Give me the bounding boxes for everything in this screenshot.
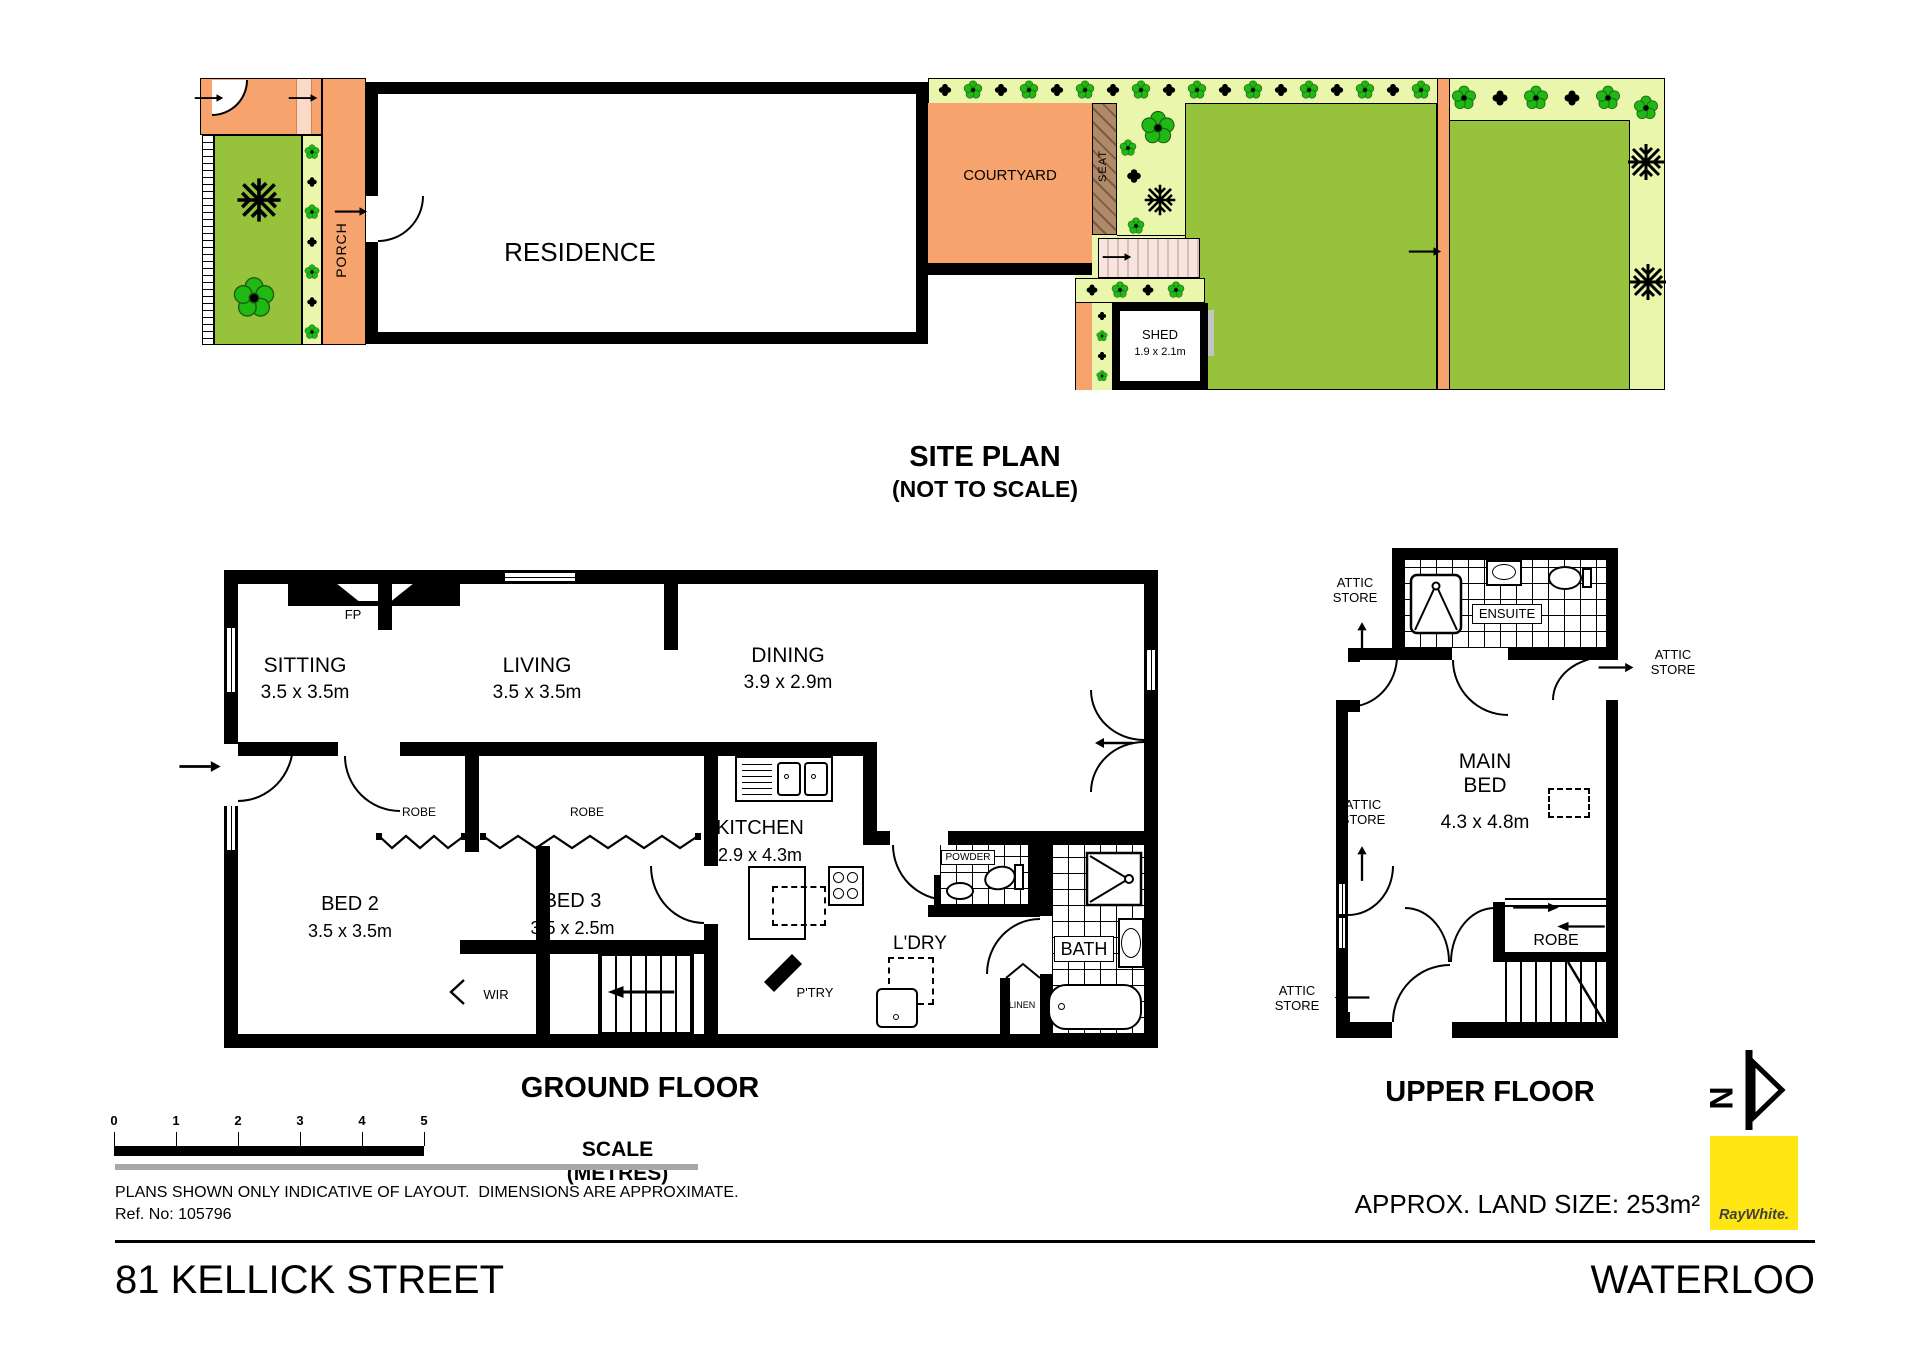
main-bed-dashed xyxy=(1548,788,1590,818)
robe-label: ROBE xyxy=(375,806,463,819)
wall xyxy=(224,570,1158,584)
cross-icon xyxy=(1272,81,1290,99)
shower-icon xyxy=(1085,851,1143,907)
door-arc-icon xyxy=(1552,656,1606,700)
flower-icon xyxy=(304,144,320,160)
flower-icon xyxy=(1096,370,1108,382)
linen-door-icon xyxy=(1004,962,1042,980)
cross-icon xyxy=(305,295,319,309)
main-bed-dims: 4.3 x 4.8m xyxy=(1410,812,1560,833)
scale-tick xyxy=(238,1132,239,1146)
laundry-tub xyxy=(876,988,918,1028)
residence xyxy=(366,82,928,344)
flower-icon xyxy=(1187,80,1207,100)
fern-icon xyxy=(1626,142,1666,182)
door-arc-icon xyxy=(650,866,704,924)
flower-icon xyxy=(1167,281,1185,299)
door-arc-icon xyxy=(344,756,400,812)
site-plan-subtitle: (NOT TO SCALE) xyxy=(835,477,1135,503)
basin xyxy=(946,882,974,900)
cross-icon xyxy=(305,235,319,249)
site-divider-fence xyxy=(1437,79,1450,389)
flower-icon xyxy=(1523,85,1549,111)
linen-label: LINEN xyxy=(1000,1000,1044,1010)
sitting-label: SITTING xyxy=(230,654,380,678)
ground-floor-title: GROUND FLOOR xyxy=(490,1072,790,1104)
door-arc-icon xyxy=(1392,964,1450,1022)
porch-door-gap xyxy=(366,196,378,242)
path-arrow-icon xyxy=(1102,252,1132,262)
cross-icon xyxy=(1096,310,1108,322)
north-letter: N xyxy=(1702,1078,1738,1118)
dining-dims: 3.9 x 2.9m xyxy=(713,672,863,693)
robe-rail-icon xyxy=(480,832,702,852)
toilet xyxy=(1548,566,1582,590)
cross-icon xyxy=(1384,81,1402,99)
upper-floor-title: UPPER FLOOR xyxy=(1340,1076,1640,1108)
vanity-basin xyxy=(1121,928,1141,958)
flower-icon xyxy=(232,276,276,320)
front-fence xyxy=(202,135,214,345)
north-arrow-icon xyxy=(1742,1048,1788,1132)
wall xyxy=(928,263,1092,275)
scale-tick-label: 1 xyxy=(171,1114,181,1129)
scale-tick xyxy=(300,1132,301,1146)
flower-icon xyxy=(304,324,320,340)
kitchen-dims: 2.9 x 4.3m xyxy=(690,845,830,865)
disclaimer: PLANS SHOWN ONLY INDICATIVE OF LAYOUT. D… xyxy=(115,1184,815,1202)
bed3-dims: 3.5 x 2.5m xyxy=(500,918,645,938)
flower-icon xyxy=(1075,80,1095,100)
flower-icon xyxy=(1096,330,1108,342)
flower-icon xyxy=(1131,80,1151,100)
flower-icon xyxy=(304,204,320,220)
dining-label: DINING xyxy=(713,644,863,668)
wall xyxy=(378,584,392,630)
floorplan-page: COURTYARD SEAT SHED 1.9 x 2.1m PORCH R xyxy=(0,0,1920,1357)
wall xyxy=(704,924,718,1034)
wall xyxy=(460,940,704,954)
stairs-arrow-icon xyxy=(606,985,676,999)
land-size: APPROX. LAND SIZE: 253m² xyxy=(1350,1190,1700,1219)
cross-icon xyxy=(1489,87,1511,109)
cross-icon xyxy=(936,81,954,99)
flower-icon xyxy=(1299,80,1319,100)
bed2-dims: 3.5 x 3.5m xyxy=(275,921,425,941)
burner xyxy=(833,872,844,883)
attic-store-label: ATTIC STORE xyxy=(1262,984,1332,1013)
pantry-door-icon xyxy=(762,950,806,992)
main-bed-label: MAIN BED xyxy=(1445,750,1525,797)
bathtub-tap xyxy=(1058,1003,1065,1010)
wall xyxy=(664,584,678,650)
cross-icon xyxy=(1084,282,1100,298)
toilet-cistern xyxy=(1014,864,1024,890)
flower-icon xyxy=(1140,110,1176,146)
cross-icon xyxy=(1104,81,1122,99)
cross-icon xyxy=(1124,166,1144,186)
scale-tick-label: 5 xyxy=(419,1114,429,1129)
burner xyxy=(833,888,844,899)
entry-arrow-icon xyxy=(178,760,222,773)
flower-icon xyxy=(1243,80,1263,100)
sink-drainer xyxy=(742,763,772,795)
scale-tick xyxy=(114,1132,115,1146)
sink-drain xyxy=(811,774,816,779)
kitchen-label: KITCHEN xyxy=(690,817,830,839)
shed-dims: 1.9 x 2.1m xyxy=(1116,346,1204,358)
burner xyxy=(847,872,858,883)
cross-icon xyxy=(1561,87,1583,109)
lawn-panel-1 xyxy=(1185,103,1437,390)
scale-tick-label: 3 xyxy=(295,1114,305,1129)
flower-icon xyxy=(963,80,983,100)
lawn-panel-2 xyxy=(1448,120,1630,390)
fern-icon xyxy=(1143,183,1177,217)
ensuite-basin xyxy=(1492,564,1516,580)
living-dims: 3.5 x 3.5m xyxy=(462,682,612,703)
wall xyxy=(1144,570,1158,1048)
porch-door-arrow-icon xyxy=(334,206,368,217)
suburb: WATERLOO xyxy=(1300,1258,1815,1303)
powder-label: POWDER xyxy=(941,852,995,863)
cooktop xyxy=(828,866,864,906)
bed2-label: BED 2 xyxy=(275,893,425,915)
site-plan-title: SITE PLAN xyxy=(835,441,1135,473)
ref-number: Ref. No: 105796 xyxy=(115,1206,415,1224)
scale-tick-label: 0 xyxy=(109,1114,119,1129)
door-arc-icon xyxy=(1348,866,1394,916)
tub-drain xyxy=(893,1014,899,1020)
cross-icon xyxy=(1048,81,1066,99)
flower-icon xyxy=(1633,95,1659,121)
scale-tick xyxy=(424,1132,425,1146)
ensuite-label: ENSUITE xyxy=(1472,607,1542,622)
island-dashed xyxy=(772,886,826,926)
door-arc-icon xyxy=(1452,660,1508,716)
scale-tick xyxy=(362,1132,363,1146)
living-label: LIVING xyxy=(462,654,612,678)
cross-icon xyxy=(1140,282,1156,298)
burner xyxy=(847,888,858,899)
raywhite-logo-text: RayWhite. xyxy=(1710,1207,1798,1223)
entry-arrow-icon xyxy=(288,93,318,103)
sink-bowl xyxy=(804,762,828,796)
scale-tick-label: 2 xyxy=(233,1114,243,1129)
residence-label: RESIDENCE xyxy=(455,238,705,267)
scale-caption: SCALE (METRES) xyxy=(530,1138,705,1185)
flower-icon xyxy=(304,264,320,280)
scale-tick-label: 4 xyxy=(357,1114,367,1129)
door-arc-icon xyxy=(1450,907,1495,962)
wall xyxy=(1606,548,1618,658)
flower-icon xyxy=(1355,80,1375,100)
wall xyxy=(224,1034,1158,1048)
wir-door-icon xyxy=(448,978,466,1006)
flower-icon xyxy=(1595,85,1621,111)
wall xyxy=(1404,648,1452,660)
boundary-arrow-icon xyxy=(1408,246,1442,257)
attic-store-label: ATTIC STORE xyxy=(1638,648,1708,677)
attic-store-label: ATTIC STORE xyxy=(1320,576,1390,605)
ldry-label: L'DRY xyxy=(880,933,960,954)
door-arc-icon xyxy=(1348,656,1398,708)
footer-rule xyxy=(115,1240,1815,1243)
attic-store-label: ATTIC STORE xyxy=(1328,798,1398,827)
wall xyxy=(948,831,1158,845)
seat-label: SEAT xyxy=(1097,137,1113,195)
gray-divider xyxy=(115,1164,698,1170)
wir-label: WIR xyxy=(468,988,524,1003)
window xyxy=(1336,884,1348,914)
window xyxy=(505,570,575,584)
bed3-label: BED 3 xyxy=(500,890,645,912)
robe-label: ROBE xyxy=(532,806,642,819)
wall xyxy=(1336,1022,1392,1038)
shed-door xyxy=(1208,310,1214,356)
cross-icon xyxy=(1328,81,1346,99)
wall xyxy=(1392,548,1618,560)
flower-icon xyxy=(1411,80,1431,100)
window xyxy=(1336,918,1348,948)
flower-icon xyxy=(1127,217,1145,235)
site-white-gap xyxy=(928,275,1075,390)
robe-rail-icon xyxy=(376,832,468,852)
fp-label: FP xyxy=(333,608,373,623)
robe-arrow-icon xyxy=(1512,902,1560,913)
entry-gate-strip xyxy=(296,79,312,134)
flower-icon xyxy=(1119,139,1137,157)
wall xyxy=(928,905,1040,917)
attic-arrow-icon xyxy=(1330,992,1374,1003)
door-arrow-icon xyxy=(1094,737,1134,749)
cross-icon xyxy=(1216,81,1234,99)
sitting-dims: 3.5 x 3.5m xyxy=(230,682,380,703)
shed-label: SHED xyxy=(1120,328,1200,343)
wall xyxy=(1392,548,1404,648)
cross-icon xyxy=(992,81,1010,99)
courtyard-label: COURTYARD xyxy=(930,168,1090,185)
cross-icon xyxy=(1160,81,1178,99)
cross-icon xyxy=(305,175,319,189)
scale-tick xyxy=(176,1132,177,1146)
address: 81 KELLICK STREET xyxy=(115,1258,815,1303)
entry-door-gap xyxy=(224,744,238,806)
toilet-cistern xyxy=(1582,568,1592,588)
fern-icon xyxy=(235,176,283,224)
wall xyxy=(1493,902,1505,958)
attic-arrow-icon xyxy=(1357,620,1368,660)
wall xyxy=(1040,845,1052,916)
entry-arrow-icon xyxy=(194,93,224,103)
cross-icon xyxy=(1096,350,1108,362)
fern-icon xyxy=(1628,262,1668,302)
bath-label: BATH xyxy=(1054,939,1114,959)
window xyxy=(1144,650,1158,690)
porch-label: PORCH xyxy=(334,216,354,284)
wall xyxy=(1452,1022,1618,1038)
sink-drain xyxy=(784,774,789,779)
stair-rail-icon xyxy=(1566,960,1608,1024)
wall xyxy=(863,742,877,845)
flower-icon xyxy=(1111,281,1129,299)
side-strip xyxy=(1075,303,1093,390)
door-arc-icon xyxy=(238,744,294,802)
door-arc-icon xyxy=(1090,690,1144,741)
wall xyxy=(877,831,890,845)
door-arc-icon xyxy=(1405,907,1450,962)
shower-icon xyxy=(1408,572,1464,636)
raywhite-logo: RayWhite. xyxy=(1710,1136,1798,1230)
robe-label: ROBE xyxy=(1516,932,1596,950)
robe-arrow-icon xyxy=(1556,921,1606,932)
sink-bowl xyxy=(777,762,801,796)
flower-icon xyxy=(1019,80,1039,100)
flower-icon xyxy=(1451,85,1477,111)
scale-bar xyxy=(114,1146,424,1156)
